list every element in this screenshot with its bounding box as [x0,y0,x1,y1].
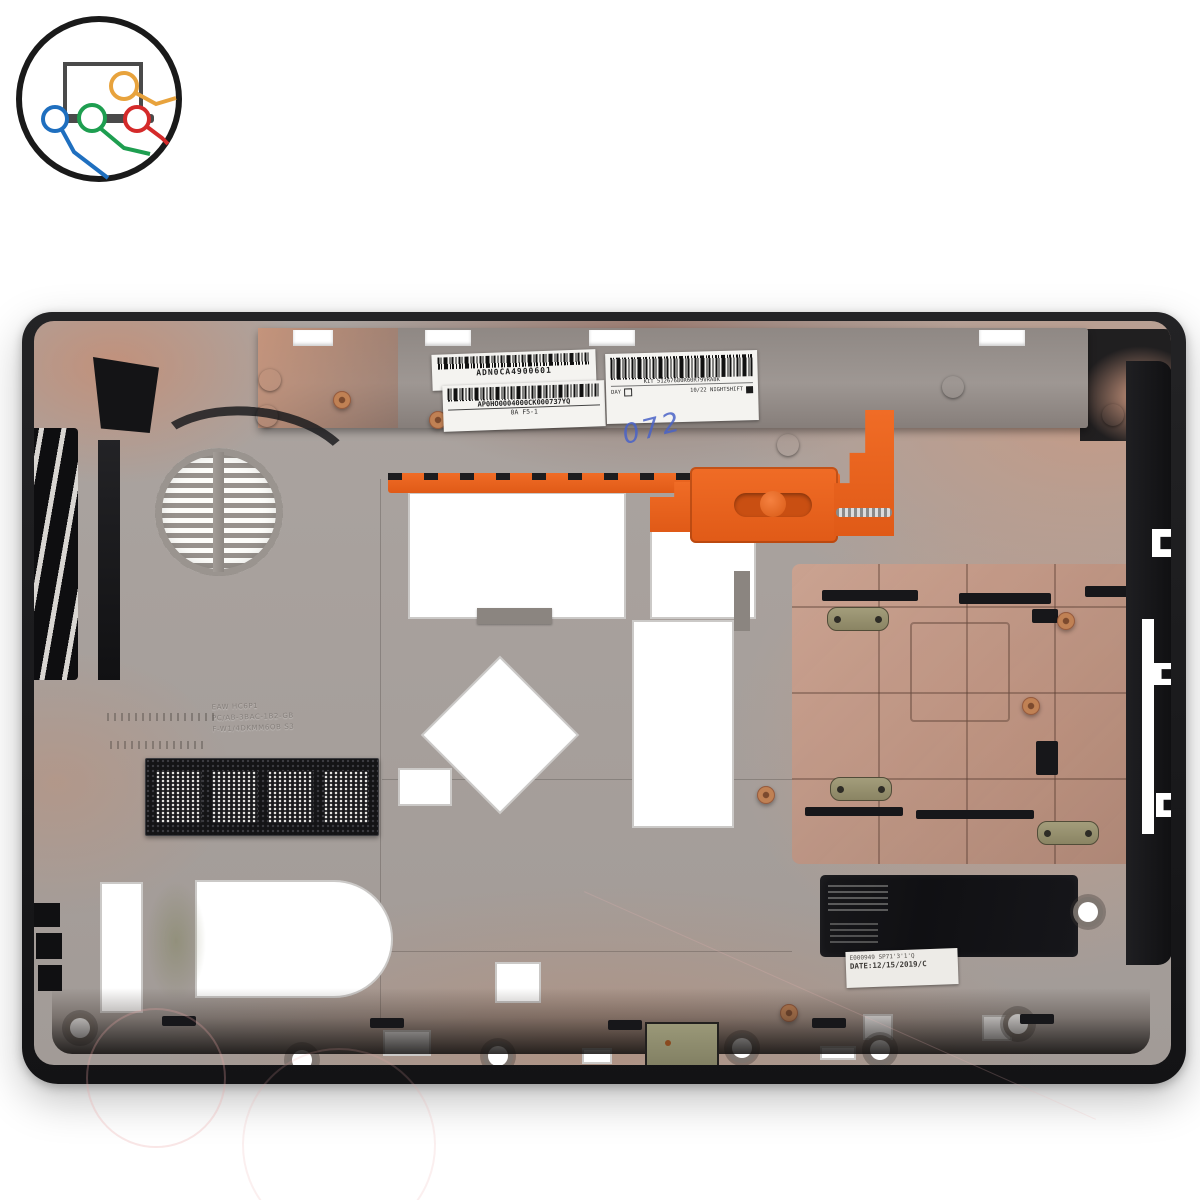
embossed-molding-text: EAW HC6P1 PC/AB-3BAC-1B2-GB F-W1/4DKMM6O… [211,700,294,736]
day-checkbox-icon [624,388,632,396]
copper-standoff [1057,612,1075,630]
latch-knob [760,491,786,517]
wall-slot [1142,619,1154,834]
wall-tab [812,1018,846,1028]
cutout-hole [408,492,626,619]
screw-boss [256,405,278,427]
bay-clip [1036,741,1058,775]
bay-clip [1032,609,1058,623]
cutout-hole [398,768,452,806]
rust-spot [665,1040,671,1046]
hdd-bay-panel [792,564,1144,864]
latch-spring [836,508,892,517]
latch-notch [425,330,471,346]
right-wall [1126,361,1171,965]
watermark-circle [86,1008,226,1148]
barcode-sticker-2: AP0HO0004000CK000737YQ 0A F5-1 [442,380,606,432]
speaker-mesh-grille [145,758,379,836]
bay-center-square [910,622,1010,722]
metal-plate [645,1022,719,1065]
logo-plug-orange-icon [111,73,137,99]
grime-patch [146,881,206,1001]
screw-boss [777,434,799,456]
copper-standoff [1022,697,1040,715]
shift-label: 10/22 NIGHTSHIFT [690,386,743,393]
cutout-hole-stadium [195,880,393,998]
bay-slot [1085,586,1131,597]
wall-tab [608,1020,642,1030]
wall-tab [1020,1014,1054,1024]
product-photo: EAW HC6P1 PC/AB-3BAC-1B2-GB F-W1/4DKMM6O… [0,0,1200,1200]
speaker-mesh-panel [324,771,368,823]
hinge-block [93,357,159,433]
wall-bracket-notch [1152,529,1171,557]
mount-tab [734,571,750,631]
molded-tick-row [107,713,217,721]
rim-nub [36,933,62,959]
cutout-hole [632,620,734,828]
rim-nub [34,903,60,927]
shift-checkbox-icon [746,386,753,393]
case-floor: EAW HC6P1 PC/AB-3BAC-1B2-GB F-W1/4DKMM6O… [34,321,1171,1065]
speaker-mesh-panel [268,771,314,823]
bay-slot [916,810,1034,819]
latch-notch [979,330,1025,346]
bay-slot [959,593,1051,604]
laptop-bottom-case: EAW HC6P1 PC/AB-3BAC-1B2-GB F-W1/4DKMM6O… [22,312,1186,1084]
speaker-mesh-panel [156,771,202,823]
screw-boss [259,369,281,391]
pad-scuff [828,883,888,911]
bay-slot [822,590,918,601]
side-rail [98,440,120,680]
day-label: DAY [611,390,621,396]
mount-tab [477,608,552,624]
logo-plug-red-icon [125,107,149,131]
copper-standoff [333,391,351,409]
orange-latch-body [690,467,838,543]
wall-bracket-notch [1156,793,1171,817]
wall-bracket-notch [1154,663,1171,685]
screw-boss [942,376,964,398]
screw-hole [1078,902,1098,922]
metal-strap [830,777,892,801]
screw-boss [1102,404,1124,426]
metal-strap [1037,821,1099,845]
fan-vent-grille [155,448,283,576]
bay-slot [805,807,903,816]
kit-sticker: KIT 51267680R60R79VRA8K DAY 10/22 NIGHTS… [605,350,759,424]
copper-standoff [757,786,775,804]
side-exhaust-vent [34,428,78,680]
metal-strap [827,607,889,631]
wall-tab [370,1018,404,1028]
orange-bracket-arm [834,410,894,536]
latch-notch [293,330,333,346]
date-sticker: E000949 SP71'3'1'Q DATE:12/15/2019/C [845,948,958,988]
molded-tick-row [110,741,205,749]
latch-notch [589,330,635,346]
molded-line-3: F-W1/4DKMM6OB S3 [212,722,294,736]
pad-scuff [830,919,878,943]
seller-logo [12,12,188,188]
logo-plug-green-icon [79,105,105,131]
logo-plug-blue-icon [43,107,67,131]
thermal-pad [820,875,1078,957]
speaker-mesh-panel [212,771,258,823]
